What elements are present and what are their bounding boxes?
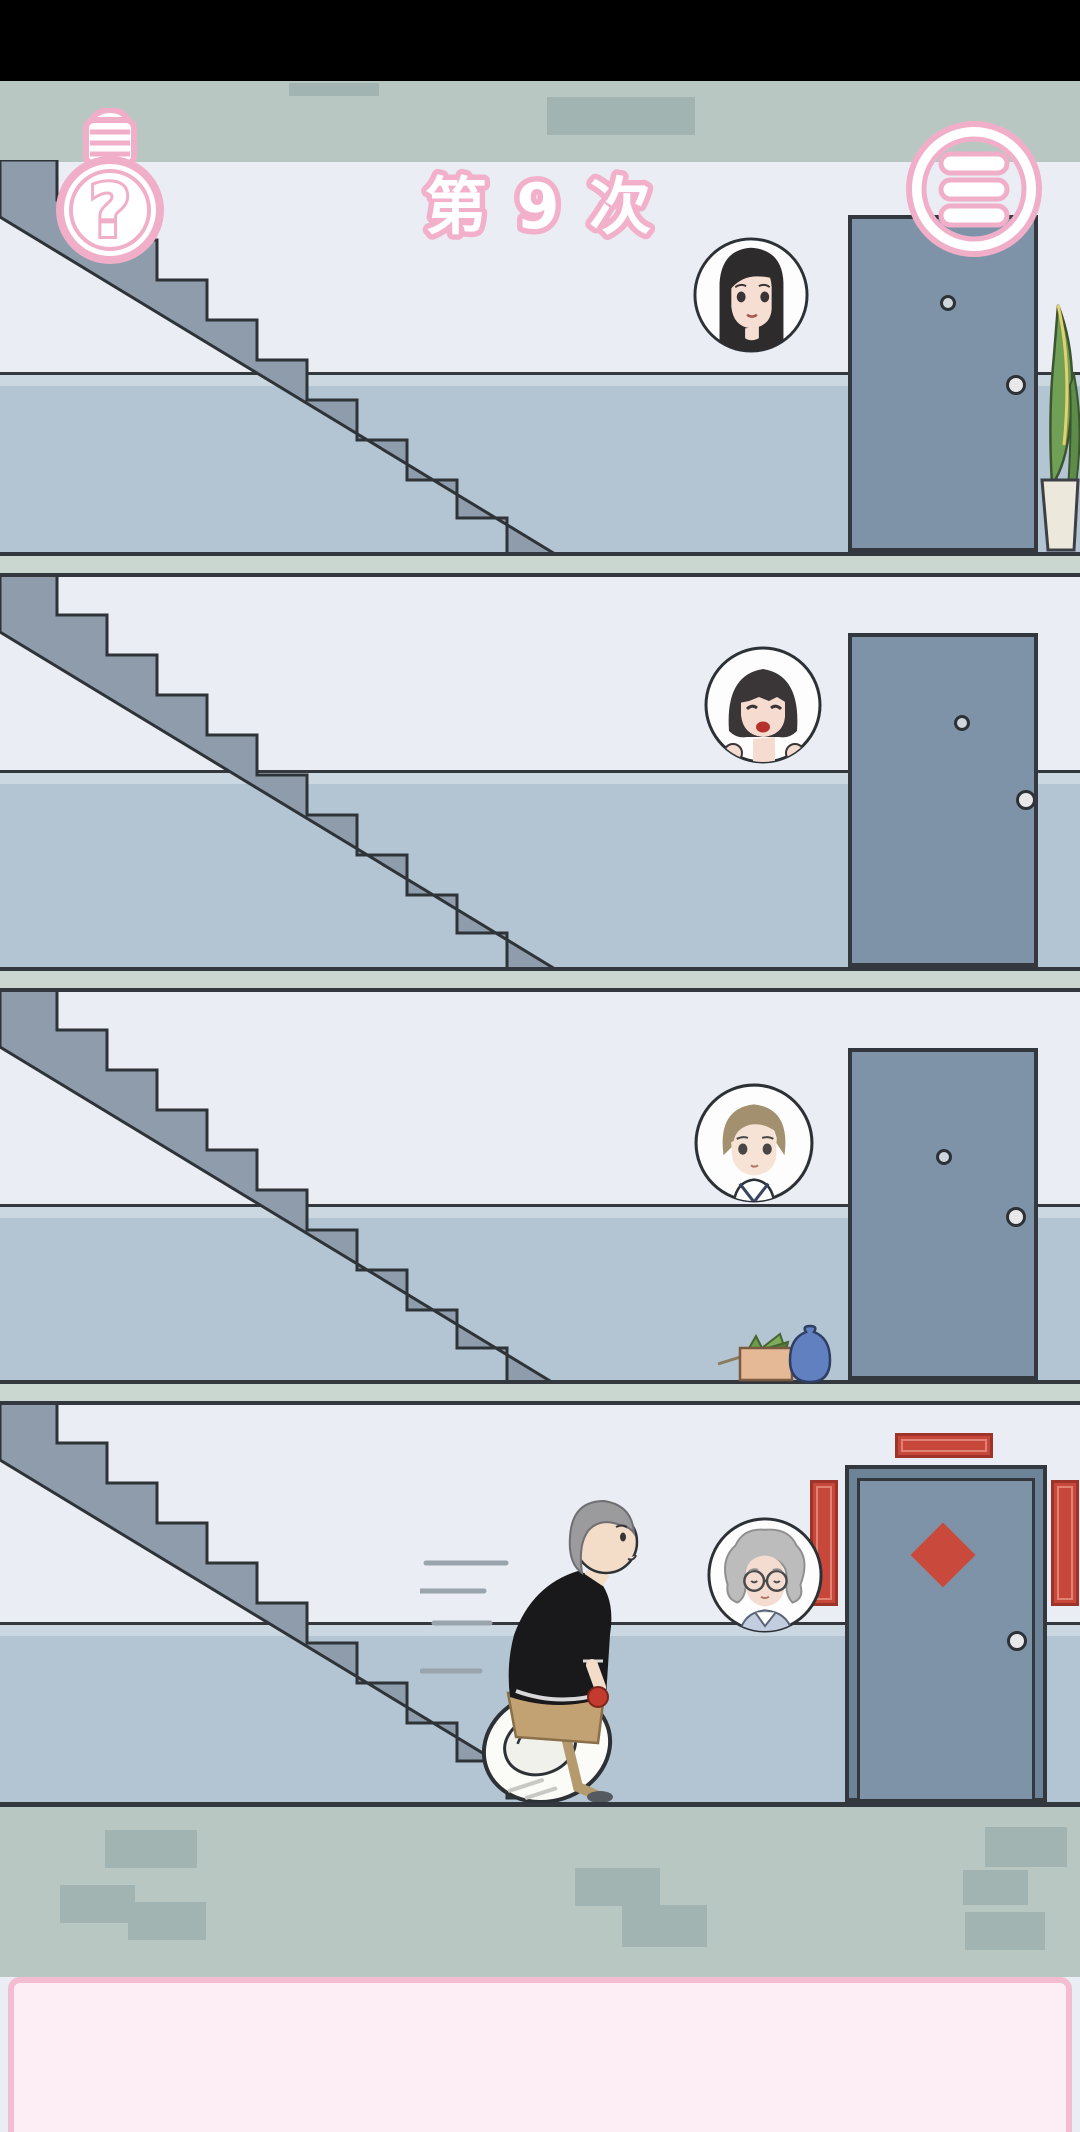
peephole-icon — [942, 297, 955, 310]
door-floor-1-details — [852, 219, 1034, 548]
brick-decor — [105, 1830, 197, 1868]
eye — [620, 1533, 626, 1542]
status-bar — [0, 0, 1080, 81]
brick-decor — [128, 1902, 206, 1940]
brick-decor — [622, 1905, 707, 1947]
game-screen: ? 第 9 次 — [0, 0, 1080, 2132]
floor3-clutter — [710, 1322, 845, 1384]
door-floor-4[interactable] — [857, 1478, 1035, 1802]
door-floor-1[interactable] — [848, 215, 1038, 552]
floor2-staircase[interactable] — [0, 575, 562, 973]
menu-button[interactable] — [903, 118, 1045, 260]
brick-decor — [985, 1827, 1067, 1867]
brick-decor — [575, 1868, 660, 1906]
brick-decor — [547, 97, 695, 135]
brick-decor — [60, 1885, 135, 1923]
door-floor-2-details — [852, 637, 1034, 963]
brick-decor — [965, 1912, 1045, 1950]
hint-button[interactable]: ? — [50, 108, 170, 273]
attempt-counter-text: 第 9 次 — [425, 170, 655, 243]
red-top-banner — [895, 1433, 993, 1458]
lightbulb-question-icon: ? — [60, 110, 160, 260]
floor-slab-3 — [0, 1380, 1080, 1405]
bottom-pink-panel — [8, 1977, 1072, 2132]
attempt-counter: 第 9 次 — [340, 148, 740, 258]
door-floor-3[interactable] — [848, 1048, 1038, 1380]
brick-decor — [289, 83, 379, 96]
motion-lines — [420, 1563, 506, 1671]
peephole-icon — [956, 717, 969, 730]
door-floor-3-details — [852, 1052, 1034, 1376]
blue-vase — [790, 1326, 830, 1382]
avatar-girl-bob-hair — [703, 645, 823, 765]
hamburger-menu-icon — [909, 124, 1039, 254]
player-character[interactable] — [420, 1485, 680, 1805]
floor-slab-2 — [0, 967, 1080, 992]
door-floor-4-details — [860, 1481, 1032, 1799]
cardboard-box — [740, 1348, 792, 1380]
brick-decor — [963, 1870, 1028, 1905]
avatar-boy-short-hair — [693, 1082, 815, 1204]
sleeve — [582, 1613, 593, 1657]
doorknob-icon[interactable] — [1008, 377, 1025, 394]
doorknob-icon[interactable] — [1008, 1209, 1025, 1226]
peephole-icon — [938, 1151, 951, 1164]
avatar-grandma-glasses — [706, 1516, 824, 1634]
red-right-banner — [1051, 1480, 1079, 1606]
question-glyph: ? — [89, 169, 131, 253]
floor-slab-1 — [0, 552, 1080, 577]
doorknob-icon[interactable] — [1018, 792, 1035, 809]
forearm — [592, 1665, 600, 1687]
potted-plant — [1028, 295, 1080, 555]
floor3-staircase[interactable] — [0, 990, 562, 1388]
red-diamond-decoration — [910, 1522, 975, 1587]
red-apple — [588, 1687, 608, 1707]
door-floor-2[interactable] — [848, 633, 1038, 967]
doorknob-icon[interactable] — [1009, 1633, 1026, 1650]
